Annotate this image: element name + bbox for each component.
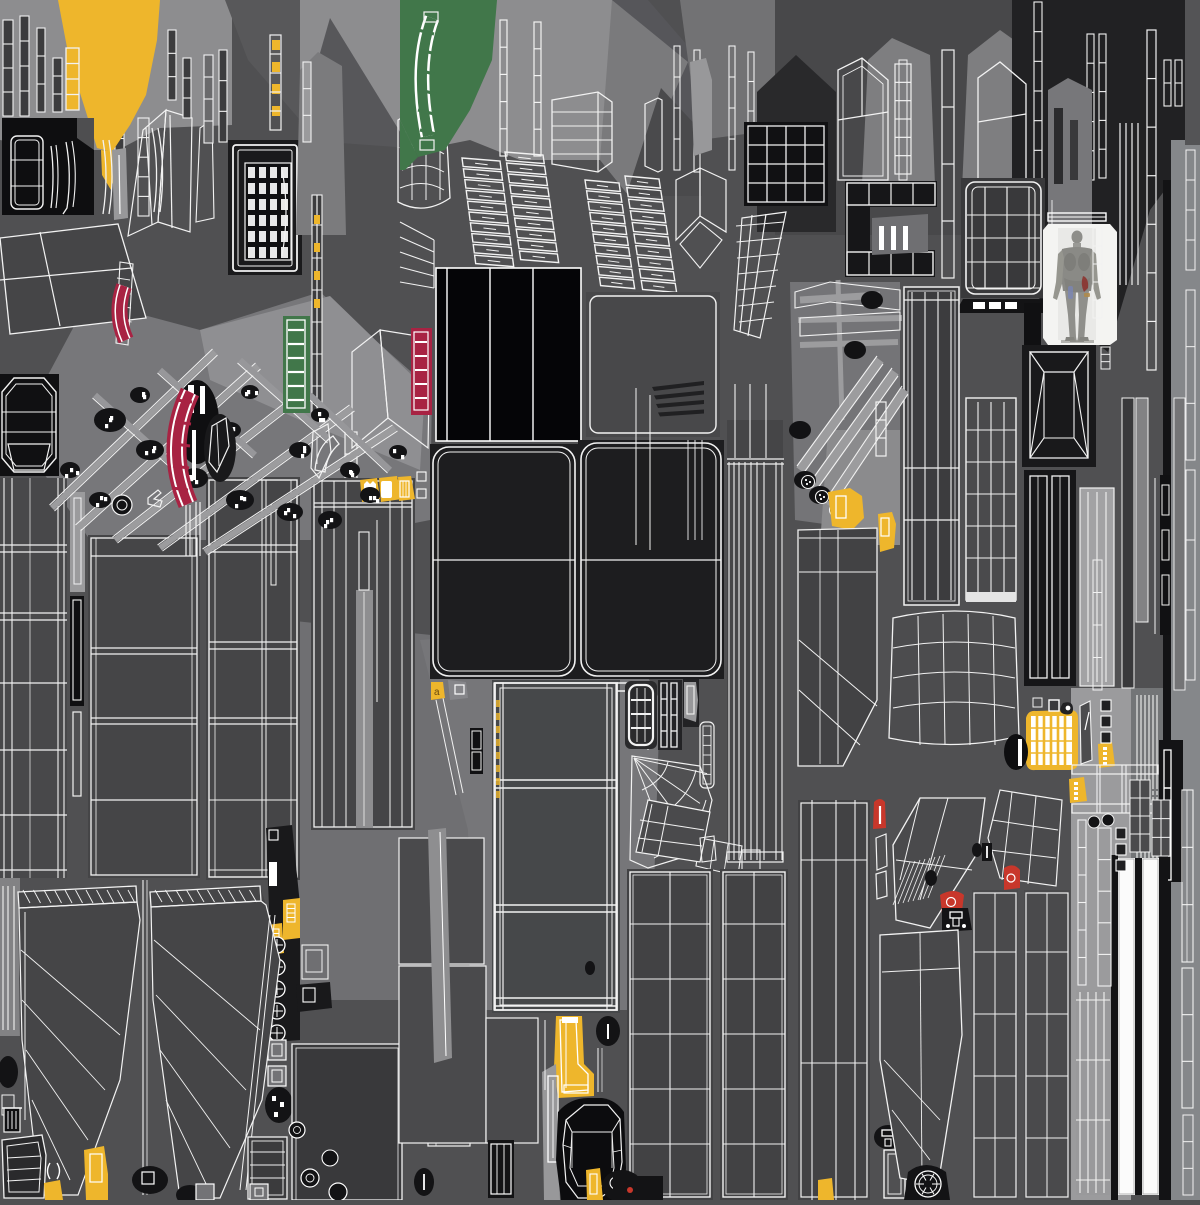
svg-text:a: a (434, 687, 440, 698)
